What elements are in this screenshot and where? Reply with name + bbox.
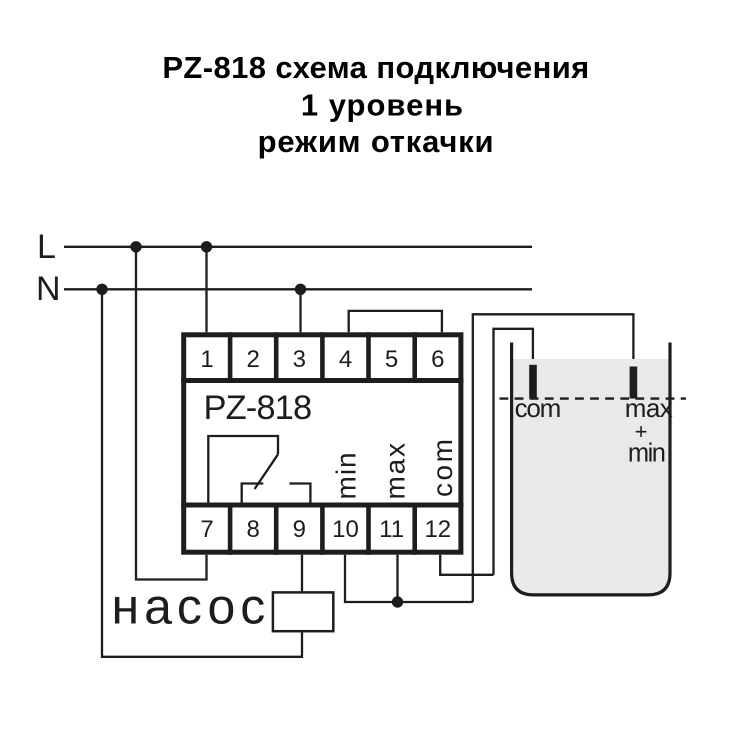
- svg-text:min: min: [331, 451, 362, 499]
- svg-text:max: max: [625, 393, 673, 423]
- svg-text:10: 10: [332, 516, 359, 543]
- svg-text:4: 4: [339, 346, 352, 373]
- svg-text:min: min: [628, 440, 665, 468]
- svg-text:1 уровень: 1 уровень: [301, 88, 464, 123]
- svg-text:N: N: [36, 270, 61, 308]
- svg-text:PZ-818: PZ-818: [204, 389, 312, 427]
- svg-text:L: L: [37, 228, 56, 266]
- svg-text:7: 7: [200, 516, 213, 543]
- svg-text:11: 11: [379, 516, 404, 543]
- svg-text:8: 8: [247, 516, 260, 543]
- svg-text:режим откачки: режим откачки: [258, 124, 495, 159]
- svg-text:насос: насос: [112, 579, 271, 635]
- svg-text:12: 12: [424, 516, 451, 543]
- svg-text:5: 5: [385, 346, 398, 373]
- svg-text:com: com: [515, 393, 561, 423]
- svg-text:com: com: [427, 437, 458, 497]
- svg-text:2: 2: [247, 346, 260, 373]
- svg-text:9: 9: [293, 516, 306, 543]
- svg-text:3: 3: [293, 346, 306, 373]
- svg-text:6: 6: [431, 346, 444, 373]
- svg-text:max: max: [380, 441, 411, 499]
- svg-text:PZ-818 схема подключения: PZ-818 схема подключения: [162, 50, 589, 85]
- svg-text:1: 1: [200, 346, 213, 373]
